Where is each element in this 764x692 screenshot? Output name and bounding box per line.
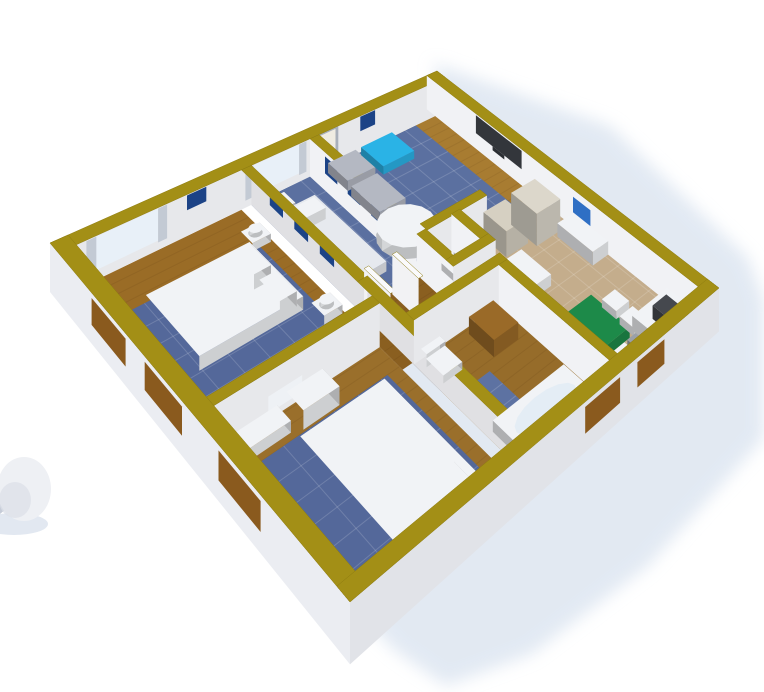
wall-northwest-deco-2 — [158, 205, 167, 243]
floorplan-3d-render — [0, 0, 764, 692]
wall-northwest-deco-6 — [299, 141, 306, 175]
rock-shading — [0, 482, 31, 518]
floorplan-viewport — [0, 0, 764, 692]
